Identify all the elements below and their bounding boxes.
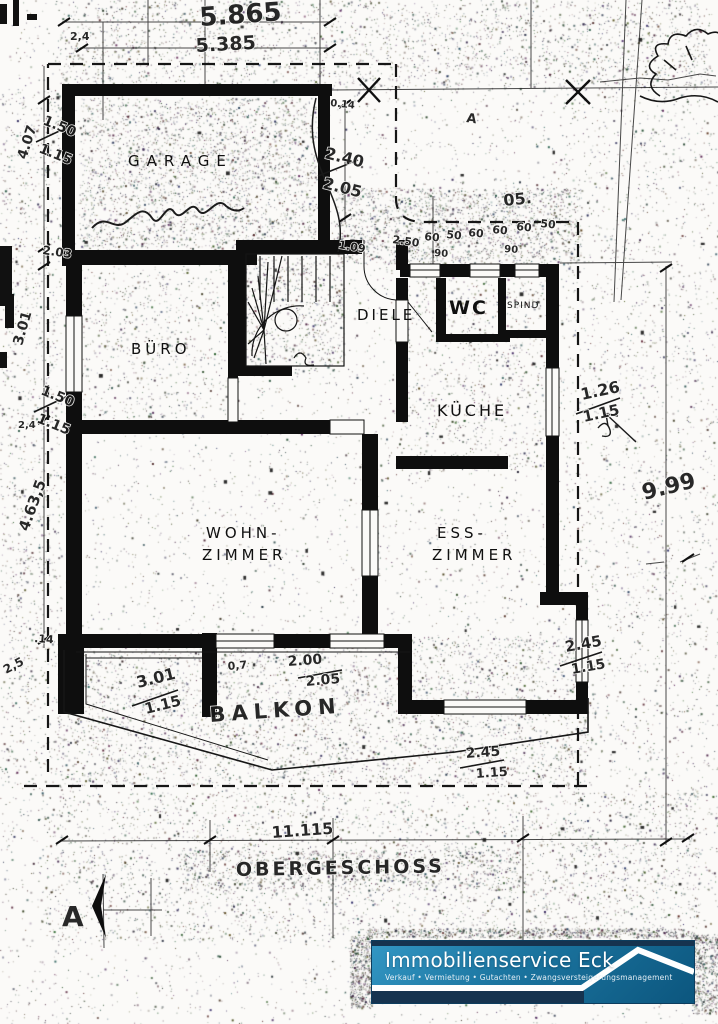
room-label: SPIND [507, 301, 539, 311]
floor-plan-drawing: GARAGEBÜRODIELEWCSPINDKÜCHEWOHN-ZIMMERES… [0, 0, 718, 1024]
banner-text-block: Immobilienservice Eck Verkauf • Vermietu… [385, 949, 685, 982]
room-label: DIELE [357, 306, 415, 324]
handwritten-annotations: 5.8652,45.3854.071.501.152.402.050.14A05… [1, 0, 698, 933]
dimension-annotation: 2,4 [18, 420, 36, 431]
dimension-annotation: 60 [424, 230, 441, 245]
dimension-annotation: 1.15 [475, 765, 508, 782]
dimension-annotation: 0.14 [330, 98, 356, 112]
dimension-annotation: 05. [502, 188, 532, 210]
dimension-annotation: 50 [540, 217, 557, 232]
dimension-annotation: 2,5 [1, 654, 26, 676]
dimension-annotation: 2.03 [42, 243, 73, 261]
dimension-annotation: 50 [446, 228, 463, 243]
room-label: GARAGE [128, 152, 233, 170]
dimension-annotation: 2.45 [465, 744, 501, 762]
dimension-annotation: BALKON [209, 694, 343, 727]
dimension-annotation: 5.385 [195, 32, 256, 57]
room-label: WC [449, 297, 488, 319]
room-labels: GARAGEBÜRODIELEWCSPINDKÜCHEWOHN-ZIMMERES… [128, 152, 539, 564]
dimension-annotation: 1.15 [143, 691, 183, 717]
construction-lines [44, 0, 718, 950]
dimension-annotation: 4.63,5 [15, 477, 50, 533]
dimension-annotation: 0,7 [227, 658, 248, 673]
room-label: BÜRO [131, 339, 191, 358]
dimension-annotation: 60 [468, 226, 485, 241]
dimension-annotation: 5.865 [198, 0, 282, 33]
dimension-annotation: 11.115 [271, 819, 334, 842]
staircase [246, 254, 344, 366]
dimension-annotation: 90 [434, 248, 449, 260]
dimension-annotation: A [62, 900, 84, 933]
dimension-annotation: .14 [34, 632, 55, 646]
brand-title: Immobilienservice Eck [385, 949, 685, 971]
room-label: KÜCHE [437, 401, 507, 420]
dimension-annotation: 2,4 [70, 30, 90, 43]
brand-subtitle: Verkauf • Vermietung • Gutachten • Zwang… [385, 973, 685, 982]
scanned-floor-plan-page: GARAGEBÜRODIELEWCSPINDKÜCHEWOHN-ZIMMERES… [0, 0, 718, 1024]
room-label: ZIMMER [202, 546, 286, 564]
room-label: WOHN- [206, 524, 281, 542]
dimension-annotation: 3.01 [10, 309, 35, 347]
dimension-annotation: 2.05 [305, 671, 341, 690]
x-markings [358, 78, 590, 104]
dimension-annotation: 90 [504, 244, 519, 256]
room-label: ZIMMER [432, 546, 516, 564]
walls [58, 84, 588, 717]
footer-brand-banner: Immobilienservice Eck Verkauf • Vermietu… [372, 941, 694, 1003]
dimension-annotation: 3.01 [134, 664, 177, 692]
dimension-annotation: 2.50 [392, 233, 421, 250]
dimension-annotation: 2.45 [564, 632, 604, 656]
dimension-annotation: 1.15 [570, 656, 607, 678]
tree-sketch [640, 29, 718, 102]
dimension-annotation: 60 [492, 223, 509, 238]
room-label: ESS- [437, 524, 487, 542]
dimension-annotation: A [465, 111, 477, 127]
dimension-annotation: OBERGESCHOSS [236, 855, 445, 881]
dimension-annotation: 9.99 [639, 468, 698, 505]
dimension-annotation: 60 [516, 220, 533, 235]
dimension-annotation: 2.00 [287, 652, 323, 670]
